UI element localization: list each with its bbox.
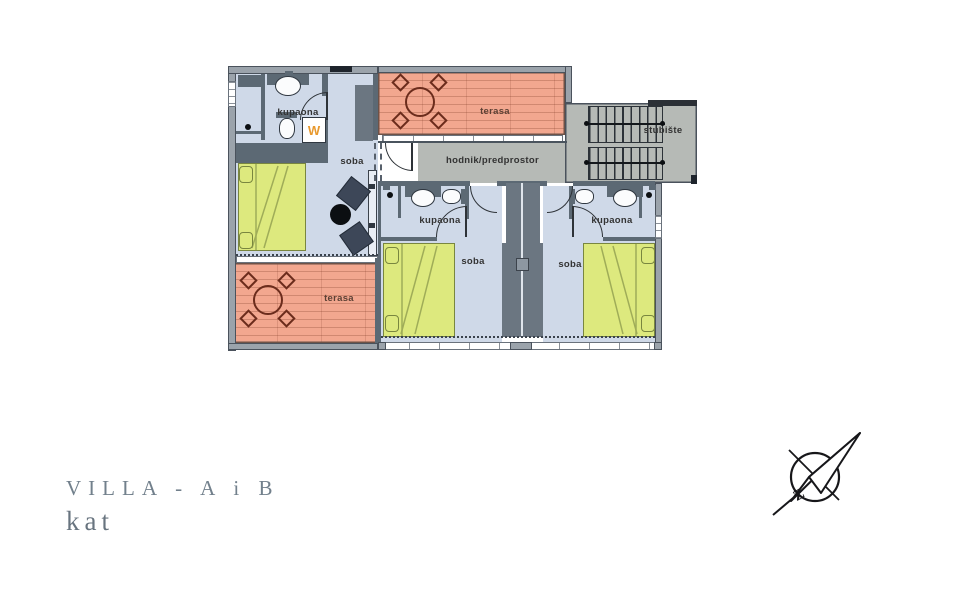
faucet-icon (420, 182, 426, 187)
title-block: VILLA - A i B kat (66, 476, 280, 537)
room-label-soba-b2: soba (544, 259, 596, 271)
wall-cap (510, 342, 532, 350)
room-label-kupaona-a: kupaona (270, 107, 326, 119)
outer-wall-top-unit-a (228, 66, 378, 74)
toilet-icon (575, 189, 594, 204)
toilet-tank (461, 189, 465, 204)
wall-segment (261, 74, 265, 140)
door-leaf (572, 206, 574, 237)
plan-subtitle: kat (66, 506, 280, 537)
pillow (239, 166, 253, 183)
window (330, 66, 352, 72)
north-arrow-compass: Z (763, 415, 868, 523)
pillow (641, 247, 655, 264)
washing-machine-letter: W (308, 123, 320, 138)
outer-wall-bottom-unit-a (228, 343, 378, 350)
needle-facet (809, 433, 860, 493)
shower-shelf (238, 75, 261, 87)
wall-segment (381, 237, 437, 241)
wall-segment (603, 237, 655, 241)
outer-wall-top-terrace (378, 66, 572, 73)
pillow (385, 315, 399, 332)
window (228, 81, 236, 107)
stair-rail (586, 162, 665, 164)
pillow (641, 315, 655, 332)
wall-segment (373, 74, 378, 140)
wall-segment (691, 175, 697, 184)
toilet-icon (279, 118, 295, 139)
outer-wall-right (655, 183, 662, 350)
round-table (330, 204, 351, 225)
shower-head-icon (387, 192, 393, 198)
shower-head-icon (245, 124, 251, 130)
plan-title: VILLA - A i B (66, 476, 280, 501)
sink-icon (411, 189, 435, 207)
floor-plan-page: W (0, 0, 960, 591)
room-label-kupaona-b1: kupaona (410, 215, 470, 227)
room-label-soba-a: soba (327, 156, 377, 168)
wall-segment (648, 100, 697, 106)
open-partition-dashed (380, 143, 384, 181)
window (655, 215, 662, 239)
desk-item (369, 223, 375, 228)
wardrobe (236, 143, 328, 163)
door-arc (385, 143, 413, 171)
wall-segment (375, 258, 381, 343)
rail-post (584, 160, 589, 165)
room-label-terasa-bottom: terasa (309, 293, 369, 305)
room-label-terasa-top: terasa (465, 106, 525, 118)
room-label-stubiste: stubište (631, 125, 695, 137)
outer-wall-left (228, 66, 236, 351)
faucet-icon (622, 182, 628, 187)
rail-post (660, 160, 665, 165)
terrace-table-icon (405, 87, 435, 117)
room-label-hodnik: hodnik/predprostor (420, 155, 565, 167)
glass-door (236, 256, 378, 263)
wall-segment (398, 186, 401, 218)
shower-head-holder (383, 185, 390, 190)
duct-box (516, 258, 529, 271)
pillow (239, 232, 253, 249)
terrace-table-icon (253, 285, 283, 315)
shower-head-icon (646, 192, 652, 198)
wardrobe (355, 85, 373, 141)
desk-item (369, 184, 375, 189)
sink-icon (275, 76, 301, 96)
shower-head-holder (649, 185, 656, 190)
wall-segment (236, 131, 261, 134)
central-wall-upper (506, 183, 540, 245)
wall-cap (378, 342, 386, 350)
wall-cap (654, 342, 662, 350)
toilet-icon (442, 189, 461, 204)
pillow (385, 247, 399, 264)
sliding-door-line (381, 336, 655, 340)
room-label-soba-b1: soba (447, 256, 499, 268)
wall-segment (378, 183, 381, 258)
door-leaf (411, 143, 413, 171)
rail-post (584, 121, 589, 126)
door-leaf (326, 92, 328, 120)
room-label-kupaona-b2: kupaona (582, 215, 642, 227)
outer-wall-terrace-right (565, 66, 572, 103)
sink-icon (613, 189, 637, 207)
washing-machine-icon: W (302, 117, 326, 143)
floor-plan: W (225, 63, 703, 355)
